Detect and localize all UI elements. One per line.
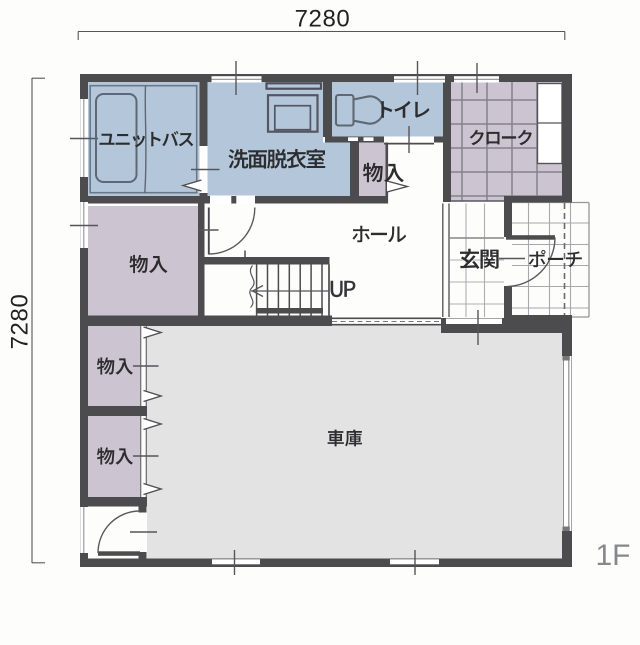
svg-text:7280: 7280 — [295, 6, 351, 33]
svg-text:7280: 7280 — [7, 294, 34, 350]
svg-text:1F: 1F — [596, 539, 631, 572]
